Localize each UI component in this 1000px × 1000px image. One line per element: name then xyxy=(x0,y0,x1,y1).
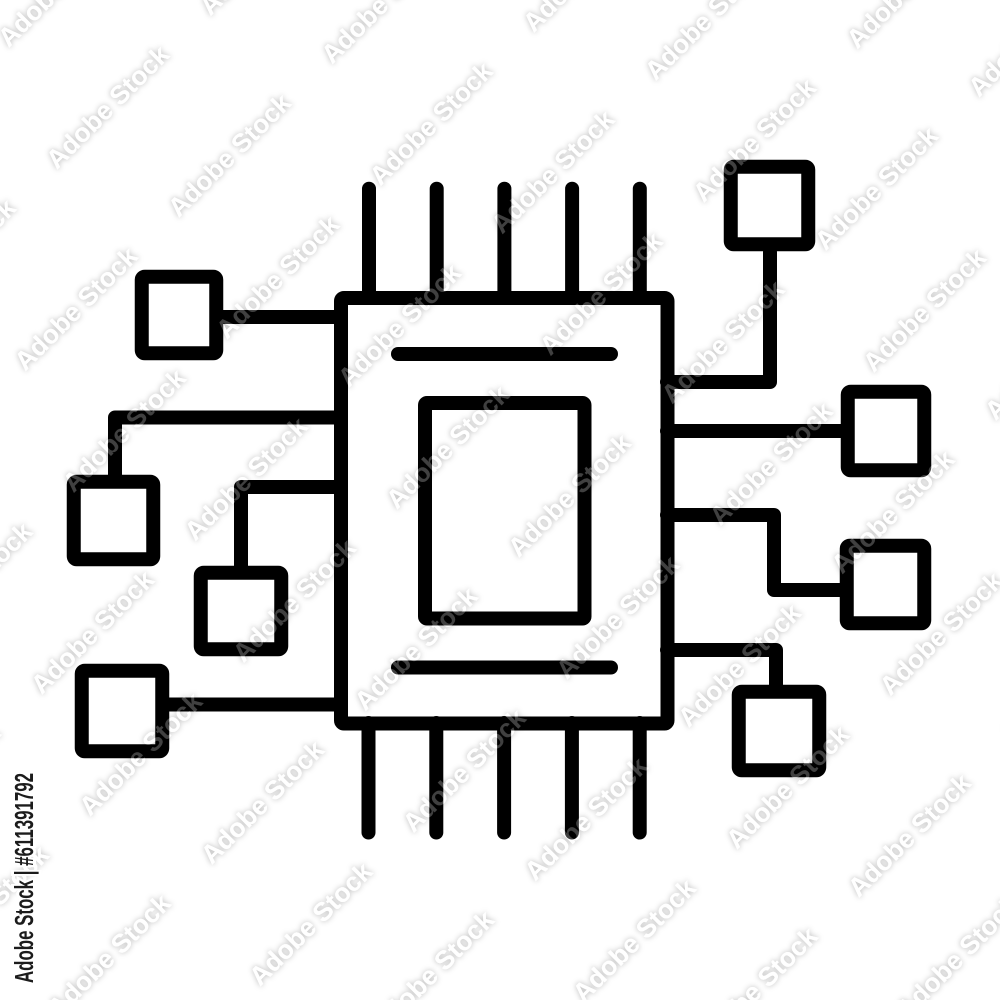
svg-text:Adobe Stock | #611391792: Adobe Stock | #611391792 xyxy=(9,773,39,983)
